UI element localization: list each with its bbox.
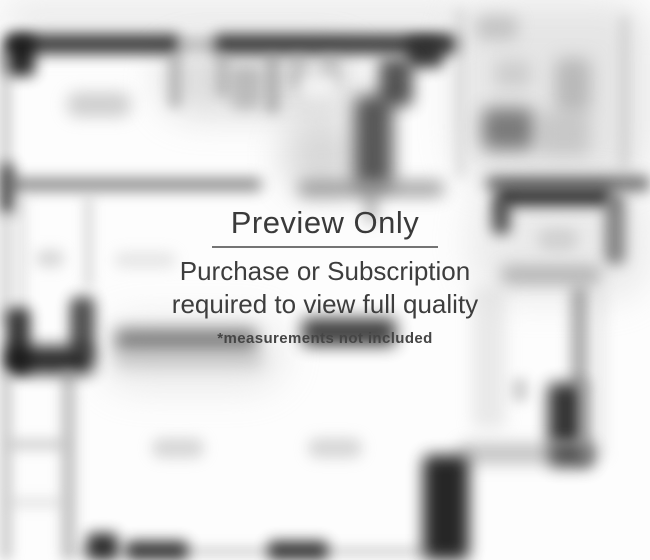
closet-stub-2-shape [215, 54, 230, 97]
right-marks-shape [512, 378, 528, 402]
hall-rung-1-shape [8, 438, 66, 451]
divider-vline-shape [455, 8, 465, 178]
bath-blob-3-shape [482, 108, 534, 150]
bottom-wall-line-shape [76, 547, 428, 556]
right-room-top-wall-shape [497, 188, 611, 206]
diag-wall-step-1-shape [407, 38, 443, 68]
left-wall-upper-shape [0, 50, 11, 170]
center-wall-shape [298, 180, 444, 197]
bottom-dark-1-shape [126, 541, 188, 560]
right-dark-blob-shape [548, 383, 583, 445]
hall-rung-2-shape [8, 497, 66, 508]
closet-stub-1-shape [168, 54, 182, 108]
right-band-dark-shape [549, 444, 593, 467]
closet-stub-3-shape [265, 54, 280, 114]
watermark-note: *measurements not included [0, 330, 650, 347]
top-left-corner-shape [5, 36, 35, 76]
floorplan-preview-image: Preview Only Purchase or Subscription re… [0, 0, 650, 560]
hall-left-wall-shape [0, 372, 12, 560]
diag-wall-step-2-shape [379, 58, 413, 106]
bedroom-label-shape [67, 92, 131, 117]
right-room-wall-ext-shape [486, 176, 650, 191]
bath-blob-1-shape [476, 15, 518, 40]
watermark: Preview Only Purchase or Subscription re… [0, 206, 650, 347]
fog-top-right-shape [455, 0, 650, 185]
bottom-pillar-shape [423, 455, 469, 560]
top-wall-left-shape [8, 34, 180, 54]
closet-stub-4-shape [288, 54, 307, 88]
counter-light-shape [115, 352, 263, 369]
mid-left-wall-shape [6, 178, 262, 191]
watermark-subtitle-line1: Purchase or Subscription [0, 255, 650, 288]
fog-top-strip-shape [0, 0, 470, 36]
right-wall-low-shape [579, 380, 592, 464]
bath-marks-shape [538, 112, 590, 156]
watermark-divider [212, 246, 438, 248]
center-wall-blob-shape [354, 95, 393, 187]
bottom-dark-2-shape [268, 541, 328, 560]
right-band-shape [459, 443, 593, 464]
right-edge-vline-shape [620, 15, 629, 170]
top-wall-gap-shape [178, 38, 218, 51]
tub-bottom-shape [6, 346, 94, 374]
watermark-subtitle-line2: required to view full quality [0, 288, 650, 321]
kitchen-label-shape [301, 75, 339, 99]
living-label-2-shape [308, 438, 362, 458]
fog-closet-area-shape [160, 48, 360, 116]
living-label-1-shape [152, 438, 204, 458]
closet-stub-5-shape [321, 54, 341, 88]
closet-blob-shape [231, 66, 261, 110]
hall-inner-wall-shape [61, 370, 76, 560]
bottom-corner-block-shape [87, 533, 118, 560]
bath-blob-2-shape [495, 60, 531, 88]
top-wall-right-shape [214, 34, 458, 54]
bath-blob-4-shape [555, 58, 591, 112]
fog-center-shape [282, 118, 360, 194]
watermark-title: Preview Only [0, 206, 650, 239]
